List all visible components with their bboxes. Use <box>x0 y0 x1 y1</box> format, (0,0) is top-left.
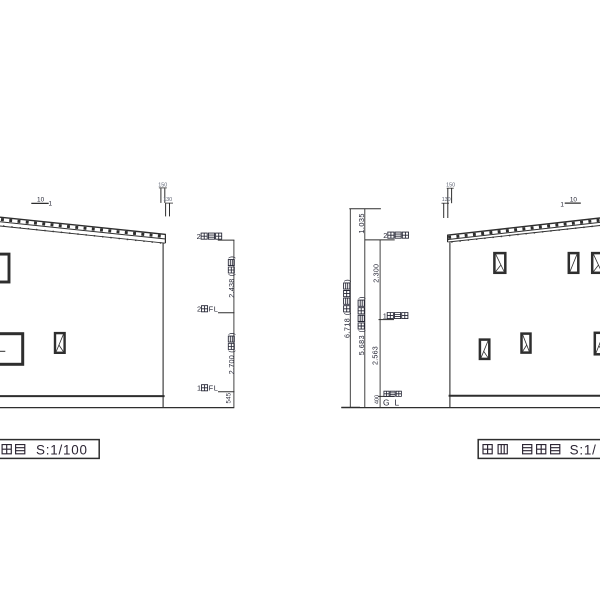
svg-text:130: 130 <box>442 197 451 203</box>
svg-text:FL: FL <box>209 384 219 393</box>
svg-text:2: 2 <box>383 231 387 240</box>
svg-text:S:1/: S:1/ <box>570 442 597 457</box>
svg-text:10: 10 <box>37 196 45 203</box>
svg-text:2.300: 2.300 <box>372 264 381 283</box>
svg-text:2: 2 <box>197 232 201 241</box>
svg-text:1: 1 <box>49 201 53 208</box>
svg-text:1: 1 <box>197 384 201 393</box>
svg-text:5.683 (: 5.683 ( <box>357 330 366 356</box>
svg-text:2.563: 2.563 <box>370 346 379 365</box>
svg-text:10: 10 <box>570 196 578 203</box>
svg-text:1: 1 <box>383 311 387 320</box>
svg-text:400: 400 <box>375 395 381 404</box>
svg-text:130: 130 <box>163 197 172 203</box>
svg-text:2: 2 <box>197 305 201 314</box>
svg-text:545: 545 <box>225 392 232 403</box>
svg-text:1.035: 1.035 <box>357 213 366 234</box>
svg-text:): ) <box>342 279 351 281</box>
svg-text:2.700 (: 2.700 ( <box>227 350 236 374</box>
svg-text:150: 150 <box>158 182 167 188</box>
svg-text:): ) <box>227 333 236 335</box>
svg-text:S:1/100: S:1/100 <box>36 442 88 457</box>
svg-text:): ) <box>227 256 236 258</box>
svg-text:6.718 (: 6.718 ( <box>342 312 351 338</box>
svg-text:FL: FL <box>209 305 219 314</box>
svg-text:): ) <box>357 297 366 299</box>
svg-text:1: 1 <box>560 202 564 209</box>
svg-text:G L: G L <box>383 397 400 407</box>
svg-text:2.438 (: 2.438 ( <box>227 273 236 297</box>
